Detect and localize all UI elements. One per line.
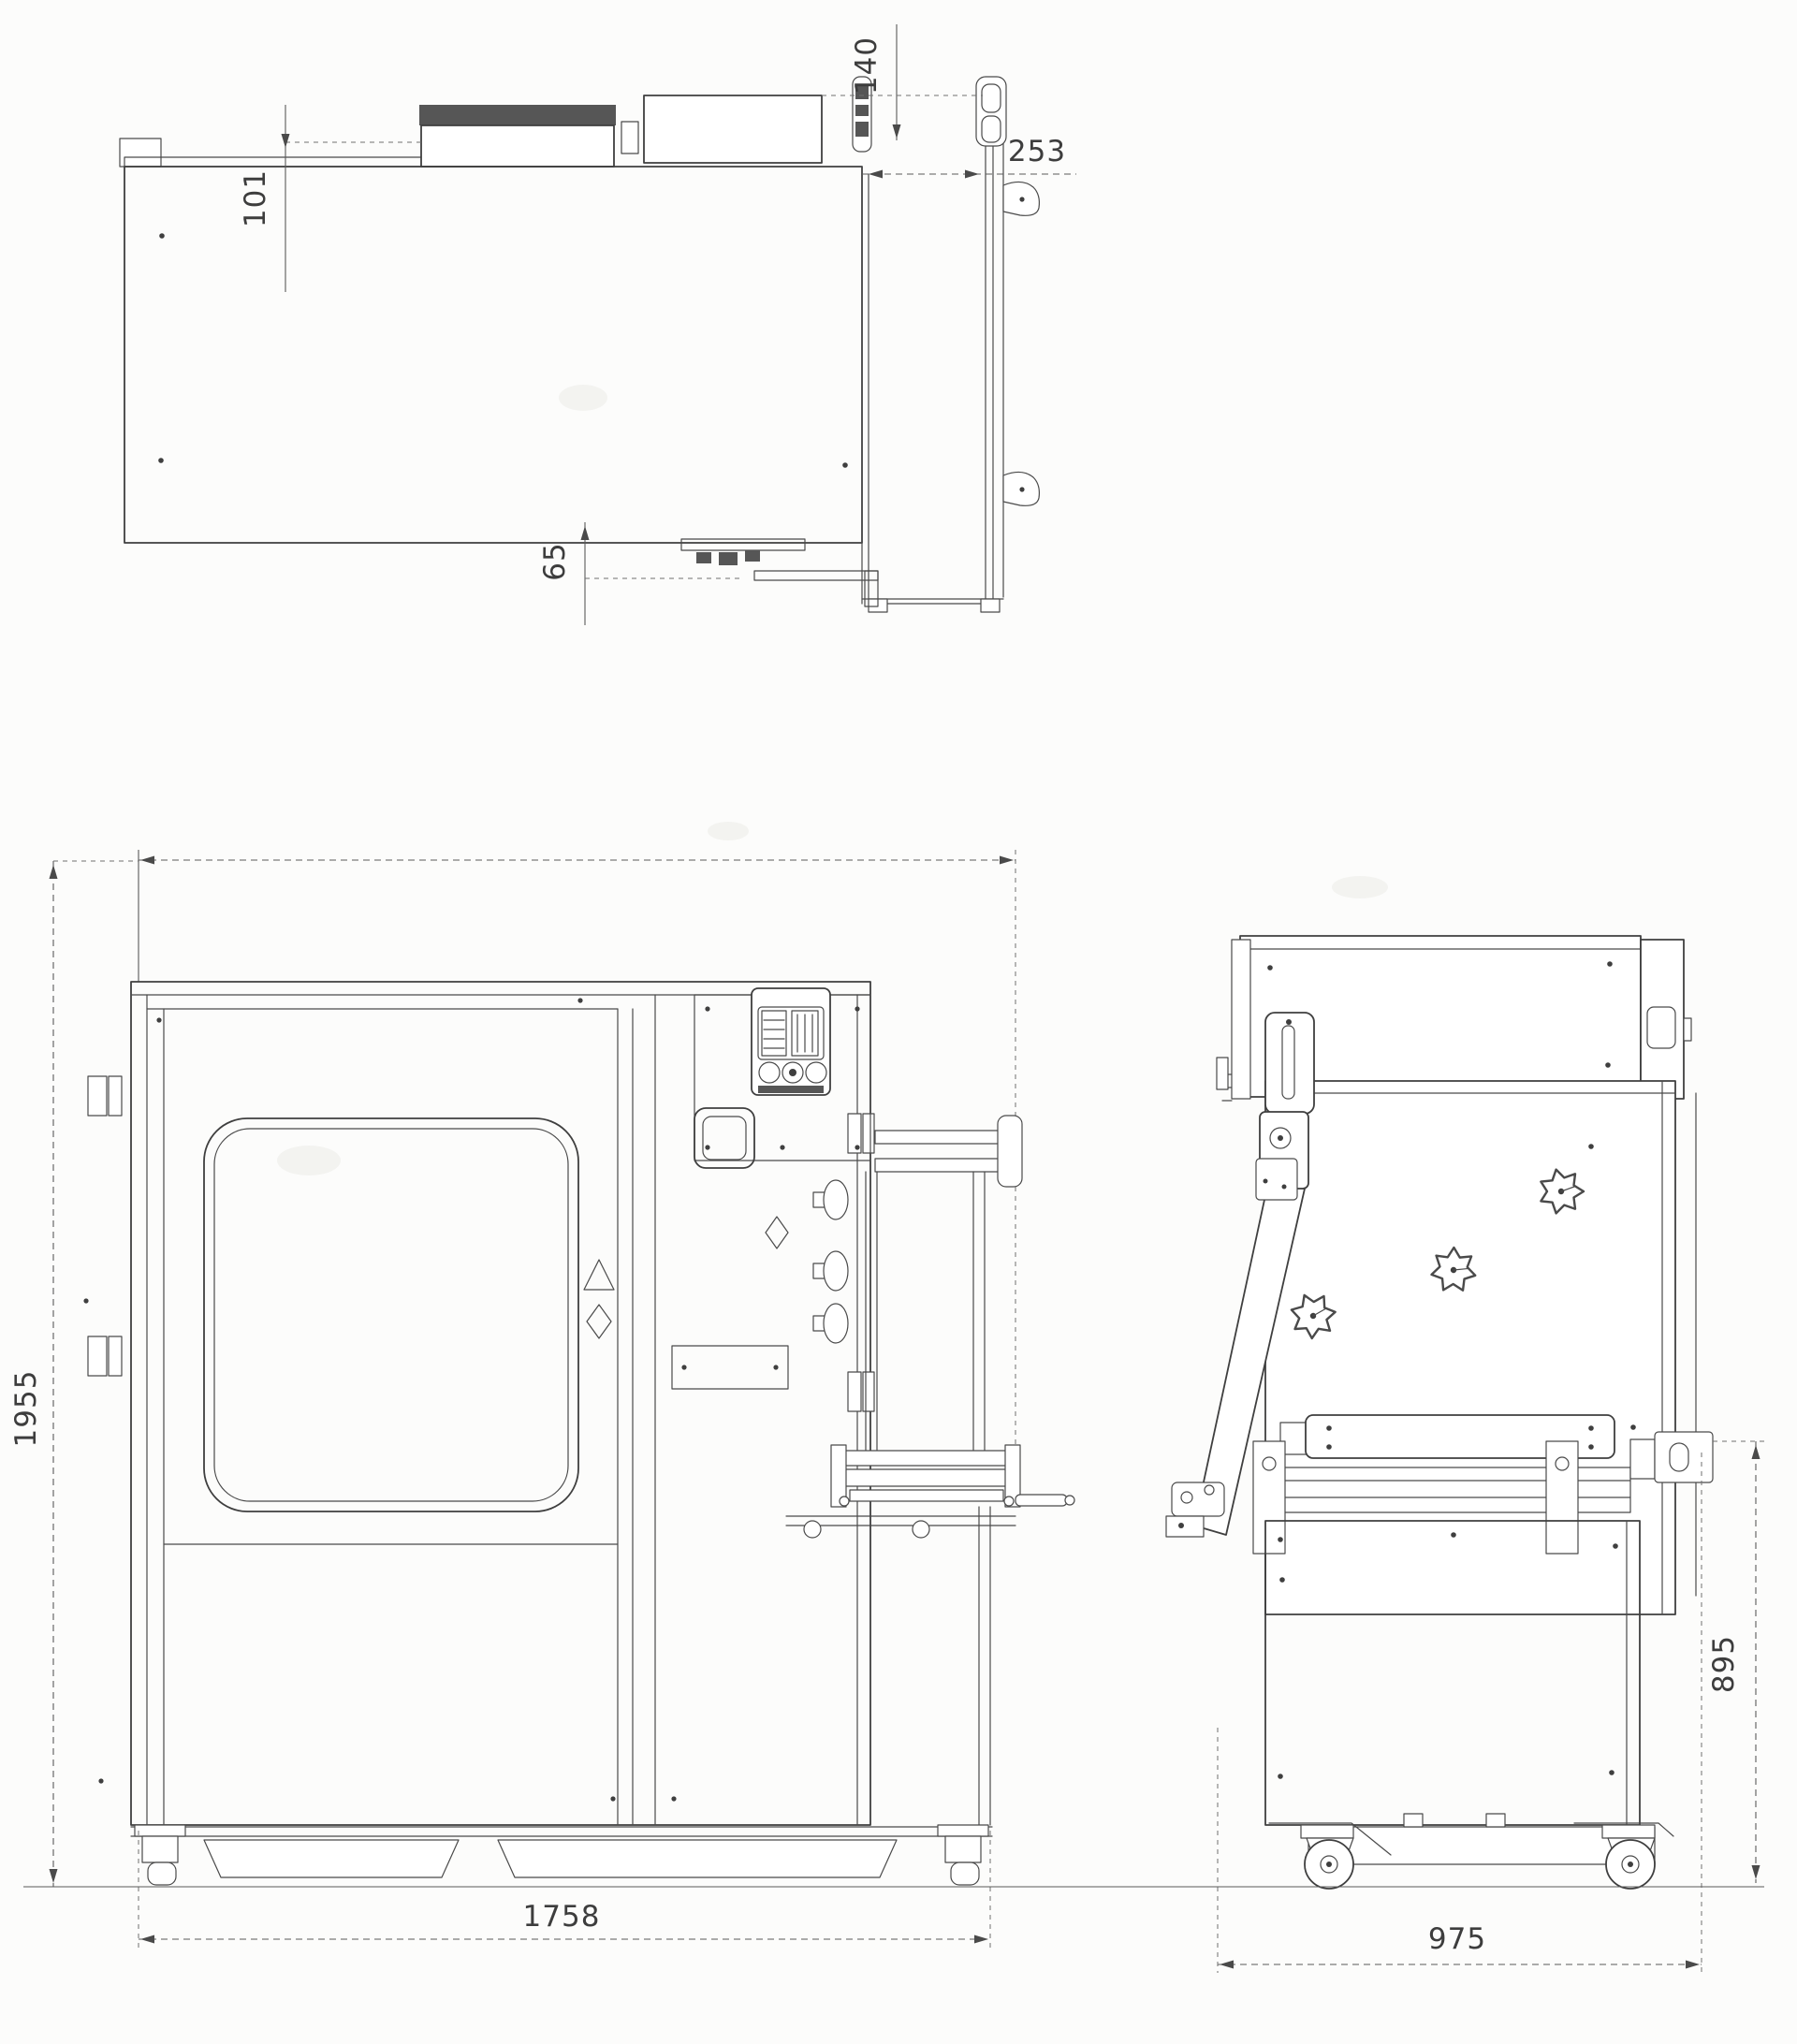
adjustment-knobs[interactable] (813, 1180, 848, 1343)
dim-label-975: 975 (1428, 1922, 1486, 1956)
top-view: 101 140 253 65 (120, 24, 1076, 625)
dim-65: 65 (538, 522, 741, 625)
dim-label-1955: 1955 (9, 1370, 43, 1448)
dim-label-101: 101 (239, 169, 272, 227)
dim-label-65: 65 (538, 542, 572, 580)
access-plate (672, 1346, 788, 1389)
control-button[interactable] (806, 1062, 826, 1083)
side-view: 895 975 (1166, 936, 1769, 1973)
drawing-sheet: 101 140 253 65 (0, 0, 1797, 2044)
panel-hinge-lower (848, 1372, 874, 1411)
dim-label-1758: 1758 (523, 1900, 601, 1934)
dim-101: 101 (239, 105, 421, 292)
door-hinge-upper (88, 1076, 122, 1116)
warning-triangle-icon (584, 1260, 614, 1290)
handle-stub (1015, 1495, 1067, 1506)
scan-noise (277, 385, 1388, 1175)
control-panel (694, 988, 870, 1161)
control-button[interactable] (759, 1062, 780, 1083)
dim-top-width (139, 850, 1015, 1460)
drawing-canvas: 101 140 253 65 (0, 0, 1797, 2044)
caster-front-left (135, 1825, 185, 1885)
top-view-rear-mechanism (681, 539, 878, 606)
diamond-symbol-icon (766, 1217, 788, 1248)
drip-tray-left (204, 1840, 459, 1877)
door-hinge-lower (88, 1336, 122, 1376)
discharge-conveyor (786, 1116, 1074, 1825)
drip-tray-right (498, 1840, 897, 1877)
top-view-main-body (124, 167, 862, 543)
diamond-symbol-icon (587, 1305, 611, 1338)
dim-140: 140 (822, 24, 983, 140)
dim-label-140: 140 (850, 36, 884, 95)
dim-label-253: 253 (1008, 135, 1066, 168)
door-window (204, 1118, 578, 1511)
dim-895: 895 (1707, 1441, 1769, 1883)
caster-front-right (938, 1825, 988, 1885)
top-view-hopper-bar (419, 105, 616, 125)
dim-label-895: 895 (1707, 1635, 1741, 1693)
side-main-panel (1265, 1081, 1696, 1614)
front-view: 1955 1758 (9, 850, 1074, 1950)
caster-side-right (1602, 1825, 1655, 1889)
top-view-feed-unit (644, 95, 822, 163)
inspection-window (694, 1108, 754, 1168)
caster-side-left (1301, 1825, 1353, 1889)
top-view-connector (621, 122, 638, 153)
front-base (131, 1825, 992, 1885)
top-view-hopper-body (421, 125, 614, 167)
dim-253: 253 (862, 135, 1076, 179)
front-cabinet-body (131, 982, 870, 1825)
top-view-corner-post (120, 139, 161, 167)
